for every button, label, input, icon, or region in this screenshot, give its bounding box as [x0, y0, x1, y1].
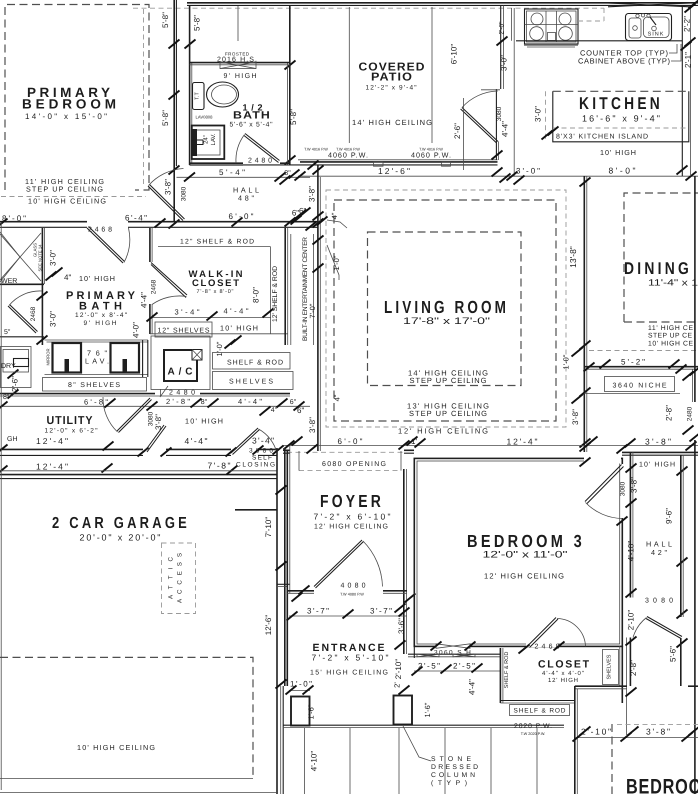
svg-text:3'-4": 3'-4" [252, 436, 274, 446]
svg-text:6": 6" [297, 406, 304, 415]
svg-text:10' HIGH CEILING: 10' HIGH CEILING [28, 197, 106, 206]
svg-text:CLOSET: CLOSET [192, 278, 240, 289]
svg-text:3'-0": 3'-0" [516, 167, 540, 176]
svg-text:4'-4": 4'-4" [185, 436, 208, 446]
svg-text:10' HIGH: 10' HIGH [79, 274, 115, 283]
svg-text:8'-0": 8'-0" [252, 287, 261, 303]
svg-text:STEP UP CE: STEP UP CE [648, 333, 692, 340]
svg-text:5'-8": 5'-8" [161, 110, 170, 126]
svg-text:2'-1": 2'-1" [684, 52, 693, 68]
svg-text:3060 S.H.: 3060 S.H. [434, 650, 474, 657]
svg-text:6080 OPENING: 6080 OPENING [322, 461, 386, 468]
svg-text:2'-8": 2'-8" [665, 405, 674, 421]
svg-text:4'-4": 4'-4" [224, 307, 249, 316]
svg-text:PRIMARY: PRIMARY [66, 290, 136, 302]
svg-text:8'X3' KITCHEN ISLAND: 8'X3' KITCHEN ISLAND [556, 134, 648, 141]
svg-text:WER: WER [1, 278, 17, 285]
svg-text:3'-0": 3'-0" [500, 55, 509, 71]
svg-text:CABINET ABOVE (TYP): CABINET ABOVE (TYP) [578, 57, 671, 66]
svg-text:BATH: BATH [233, 110, 271, 122]
svg-text:2480: 2480 [687, 406, 694, 421]
svg-text:2'-8": 2'-8" [629, 660, 638, 676]
svg-text:3'-8": 3'-8" [630, 477, 639, 493]
svg-text:3'-8": 3'-8" [571, 409, 580, 425]
svg-text:15' HIGH CEILING: 15' HIGH CEILING [310, 670, 388, 677]
svg-text:2'-2": 2'-2" [683, 16, 692, 32]
svg-text:4'-4": 4'-4" [501, 121, 510, 137]
svg-text:12' SHELF & ROD: 12' SHELF & ROD [272, 266, 279, 322]
svg-text:12' HIGH CEILING: 12' HIGH CEILING [484, 572, 564, 581]
svg-text:3'-0": 3'-0" [49, 311, 58, 327]
svg-text:5": 5" [4, 329, 11, 336]
svg-text:T.T: T.T [195, 92, 201, 100]
svg-text:48": 48" [238, 194, 254, 203]
svg-text:3'-8": 3'-8" [308, 186, 317, 202]
svg-text:7'-8" x 8'-0": 7'-8" x 8'-0" [197, 289, 234, 295]
svg-text:SHELF & ROD: SHELF & ROD [514, 708, 566, 715]
svg-text:T.W 4016 P.W: T.W 4016 P.W [336, 148, 360, 152]
svg-text:12'-0" x 6'-2": 12'-0" x 6'-2" [45, 428, 99, 435]
svg-text:4": 4" [64, 273, 71, 282]
svg-text:BEDROOM 3: BEDROOM 3 [467, 531, 585, 551]
svg-text:4'-4": 4'-4" [140, 292, 149, 308]
svg-text:PATIO: PATIO [371, 72, 413, 84]
svg-text:10' HIGH: 10' HIGH [600, 148, 636, 157]
svg-text:T.W 4016 P.W: T.W 4016 P.W [419, 148, 443, 152]
svg-text:2'-5": 2'-5" [418, 662, 440, 671]
svg-text:DINING: DINING [624, 259, 692, 278]
svg-text:42": 42" [651, 548, 667, 557]
svg-text:STEP UP CEILING: STEP UP CEILING [409, 409, 487, 418]
svg-text:3'-8": 3'-8" [308, 417, 317, 433]
svg-text:24": 24" [203, 135, 210, 144]
svg-text:1'-6": 1'-6" [307, 704, 316, 719]
svg-text:BUILT-IN ENTERTAINMENT CENTER: BUILT-IN ENTERTAINMENT CENTER [302, 237, 309, 341]
svg-text:12' HIGH: 12' HIGH [548, 677, 578, 684]
svg-text:A/C: A/C [168, 367, 194, 378]
svg-text:12'-6": 12'-6" [264, 615, 273, 636]
svg-text:1'-6": 1'-6" [423, 702, 432, 717]
svg-text:6'-10": 6'-10" [450, 44, 459, 65]
svg-text:10' HIGH CE: 10' HIGH CE [648, 341, 693, 348]
svg-text:SHELVES: SHELVES [607, 654, 613, 679]
svg-text:2468: 2468 [151, 279, 158, 294]
svg-text:UTILITY: UTILITY [47, 415, 94, 427]
svg-text:10' HIGH: 10' HIGH [220, 324, 258, 333]
svg-text:3'-0": 3'-0" [49, 250, 58, 266]
svg-text:CLOSET: CLOSET [538, 659, 590, 671]
svg-text:4'-4": 4'-4" [238, 397, 262, 406]
svg-text:SHELF & ROD: SHELF & ROD [227, 360, 283, 367]
svg-text:5'-4": 5'-4" [219, 168, 245, 177]
svg-text:2'-8": 2'-8" [166, 397, 190, 406]
svg-text:3'-4": 3'-4" [175, 308, 200, 317]
svg-text:SINK: SINK [648, 32, 665, 38]
svg-text:6'-8": 6'-8" [84, 398, 108, 407]
svg-text:4'-10": 4'-10" [310, 751, 319, 772]
svg-text:LIVING ROOM: LIVING ROOM [384, 297, 509, 317]
svg-text:4": 4" [330, 212, 339, 219]
svg-text:4": 4" [271, 407, 278, 414]
svg-text:5'-8": 5'-8" [193, 15, 202, 31]
svg-text:14' HIGH CEILING: 14' HIGH CEILING [352, 118, 432, 127]
svg-text:11'-4" x 1: 11'-4" x 1 [648, 278, 698, 288]
svg-text:10' HIGH: 10' HIGH [185, 417, 223, 426]
svg-text:1'-0": 1'-0" [215, 341, 224, 356]
svg-text:4'-4" x 4'-0": 4'-4" x 4'-0" [542, 670, 584, 677]
svg-text:6'-0": 6'-0" [338, 437, 363, 446]
svg-text:7'-10": 7'-10" [264, 517, 273, 538]
svg-text:12" SHELVES: 12" SHELVES [158, 328, 210, 335]
svg-text:2'-6": 2'-6" [453, 123, 462, 139]
svg-text:4'-10": 4'-10" [627, 541, 636, 562]
svg-text:LAV0808: LAV0808 [196, 115, 214, 120]
svg-text:3'-8": 3'-8" [646, 727, 670, 737]
svg-text:T.W 2020 P.W.: T.W 2020 P.W. [521, 732, 546, 736]
svg-text:4060 P.W.: 4060 P.W. [328, 151, 368, 160]
svg-text:2'-10": 2'-10" [394, 659, 403, 680]
svg-text:STEP UP CEILING: STEP UP CEILING [26, 185, 103, 194]
svg-text:MIRROR: MIRROR [46, 349, 51, 366]
svg-text:2 CAR GARAGE: 2 CAR GARAGE [52, 515, 190, 532]
svg-text:3'-8": 3'-8" [164, 179, 173, 195]
svg-text:8'-0": 8'-0" [2, 214, 26, 223]
svg-text:1'-0": 1'-0" [562, 354, 571, 369]
svg-text:5'-6" x 5'-4": 5'-6" x 5'-4" [230, 122, 274, 129]
svg-text:3'-7": 3'-7" [307, 607, 329, 616]
svg-text:FOYER: FOYER [320, 491, 384, 511]
svg-text:4'-4": 4'-4" [468, 679, 477, 695]
svg-text:3'-0": 3'-0" [534, 106, 543, 122]
svg-text:2'-0": 2'-0" [499, 21, 506, 35]
svg-text:3'-7": 3'-7" [370, 607, 392, 616]
svg-text:CLOSING: CLOSING [236, 462, 275, 469]
svg-text:2020 P.W.: 2020 P.W. [514, 723, 552, 730]
svg-text:3080: 3080 [620, 481, 627, 496]
svg-text:STEP UP CEILING: STEP UP CEILING [410, 376, 487, 385]
svg-text:17'-8" x 17'-0": 17'-8" x 17'-0" [403, 316, 490, 327]
svg-text:8": 8" [201, 399, 208, 406]
svg-text:7'-0": 7'-0" [308, 303, 317, 318]
svg-text:13'-8": 13'-8" [568, 246, 578, 268]
svg-text:GH: GH [7, 436, 18, 443]
svg-text:2': 2' [393, 682, 402, 688]
svg-text:12" SHELF & ROD: 12" SHELF & ROD [180, 239, 254, 246]
svg-text:3080: 3080 [496, 106, 503, 121]
svg-text:6": 6" [290, 399, 297, 406]
svg-text:12' HIGH CEILING: 12' HIGH CEILING [314, 524, 388, 531]
svg-text:SHELF & ROD: SHELF & ROD [504, 652, 510, 689]
svg-text:3'-6": 3'-6" [397, 618, 406, 634]
svg-text:T.W 4016 P.W: T.W 4016 P.W [304, 148, 328, 152]
svg-text:2'-5": 2'-5" [453, 662, 475, 671]
svg-text:5'-2": 5'-2" [621, 358, 645, 367]
svg-text:KITCHEN: KITCHEN [579, 94, 663, 113]
svg-text:5'-6": 5'-6" [669, 646, 678, 662]
svg-text:( T Y P ): ( T Y P ) [431, 780, 467, 787]
svg-text:2468: 2468 [30, 306, 37, 321]
svg-text:76": 76" [87, 349, 107, 358]
svg-text:7'-8": 7'-8" [208, 461, 231, 471]
svg-text:5'-8": 5'-8" [161, 12, 170, 28]
svg-text:BEDROO: BEDROO [626, 776, 698, 794]
svg-text:T.W 4080 P.W: T.W 4080 P.W [340, 593, 364, 597]
svg-text:4": 4" [333, 394, 342, 401]
svg-text:4'-0": 4'-0" [132, 322, 141, 338]
svg-text:9'-6": 9'-6" [665, 508, 674, 524]
svg-text:12'-0" x 11'-0": 12'-0" x 11'-0" [483, 550, 568, 561]
svg-text:3080: 3080 [181, 186, 188, 201]
svg-text:2'-10": 2'-10" [627, 610, 636, 631]
svg-text:3640 NICHE: 3640 NICHE [613, 383, 667, 390]
svg-text:4060 P.W.: 4060 P.W. [411, 151, 451, 160]
svg-text:10' HIGH CEILING: 10' HIGH CEILING [77, 743, 155, 752]
svg-text:6'-4": 6'-4" [125, 214, 147, 223]
svg-text:DRY: DRY [1, 363, 16, 370]
svg-text:12'-2" x 9'-4": 12'-2" x 9'-4" [366, 85, 418, 92]
svg-text:2016 H.S.: 2016 H.S. [217, 57, 257, 64]
svg-text:SEE NOTE 14: SEE NOTE 14 [38, 244, 43, 272]
svg-text:LAV.: LAV. [210, 133, 217, 145]
svg-text:12'-0" x 8'-4": 12'-0" x 8'-4" [75, 312, 128, 319]
svg-text:10' HIGH: 10' HIGH [639, 462, 675, 469]
svg-text:11' HIGH CE: 11' HIGH CE [648, 325, 693, 332]
